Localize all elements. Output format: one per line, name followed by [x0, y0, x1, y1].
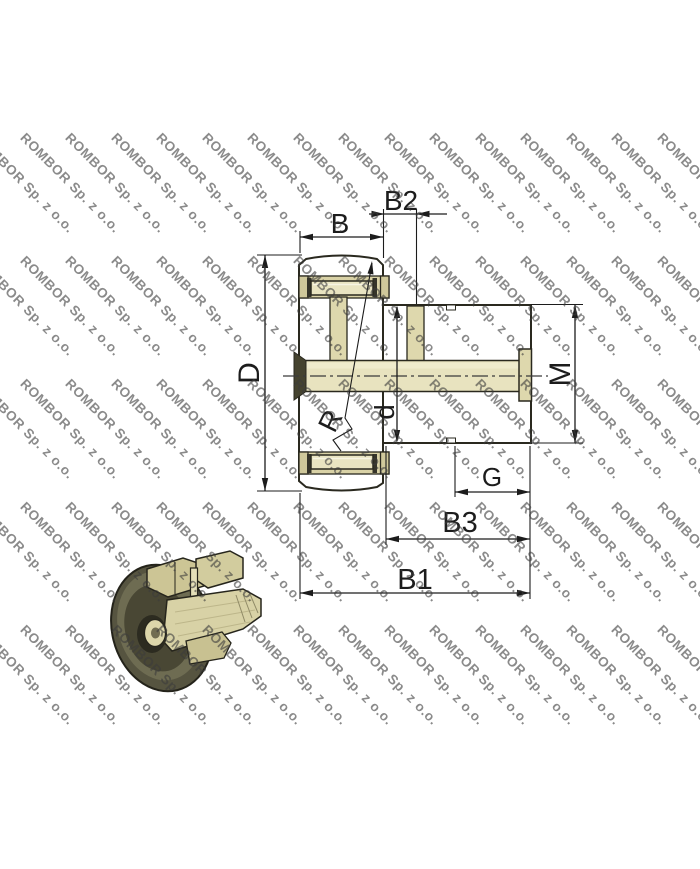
cut-face-right: [196, 551, 243, 588]
cross-section-view: [283, 256, 548, 491]
cage-rim-right: [381, 452, 390, 474]
needle-cavity-bottom: [299, 452, 389, 474]
cage-rim-left: [299, 452, 308, 474]
dim-label-B3: B3: [442, 507, 477, 539]
dim-B1: B1: [300, 493, 530, 599]
bore-counterbore-right: [519, 349, 532, 401]
needle-roller-bottom: [311, 455, 373, 469]
needle-roller-top: [311, 281, 373, 295]
dim-label-M: M: [544, 362, 577, 387]
dim-label-B2: B2: [384, 185, 418, 216]
thread-notch-top: [447, 305, 456, 310]
needle-3d: [191, 568, 198, 598]
dim-M: M: [531, 305, 583, 444]
dim-label-R: R: [312, 405, 349, 437]
needle-cavity-top: [299, 276, 389, 298]
dim-label-d: d: [369, 404, 400, 420]
thread-notch-bottom: [447, 438, 456, 443]
dim-D: D: [233, 255, 302, 491]
dim-label-B1: B1: [397, 564, 432, 596]
dim-B: B: [300, 208, 384, 258]
technical-drawing: B B2 D M d: [0, 0, 700, 869]
thumbnail-3d-view: [98, 551, 261, 702]
stud-end-hole-3d: [151, 628, 160, 639]
lube-duct-stud: [407, 306, 424, 361]
dim-label-B: B: [331, 208, 350, 239]
lube-duct-flange: [330, 297, 347, 361]
cage-rim-left: [299, 276, 308, 298]
dim-label-D: D: [233, 362, 266, 384]
diagram-stage: B B2 D M d: [0, 0, 700, 869]
dim-B3: B3: [386, 446, 530, 545]
dim-label-G: G: [482, 462, 502, 492]
cage-rim-right: [381, 276, 390, 298]
